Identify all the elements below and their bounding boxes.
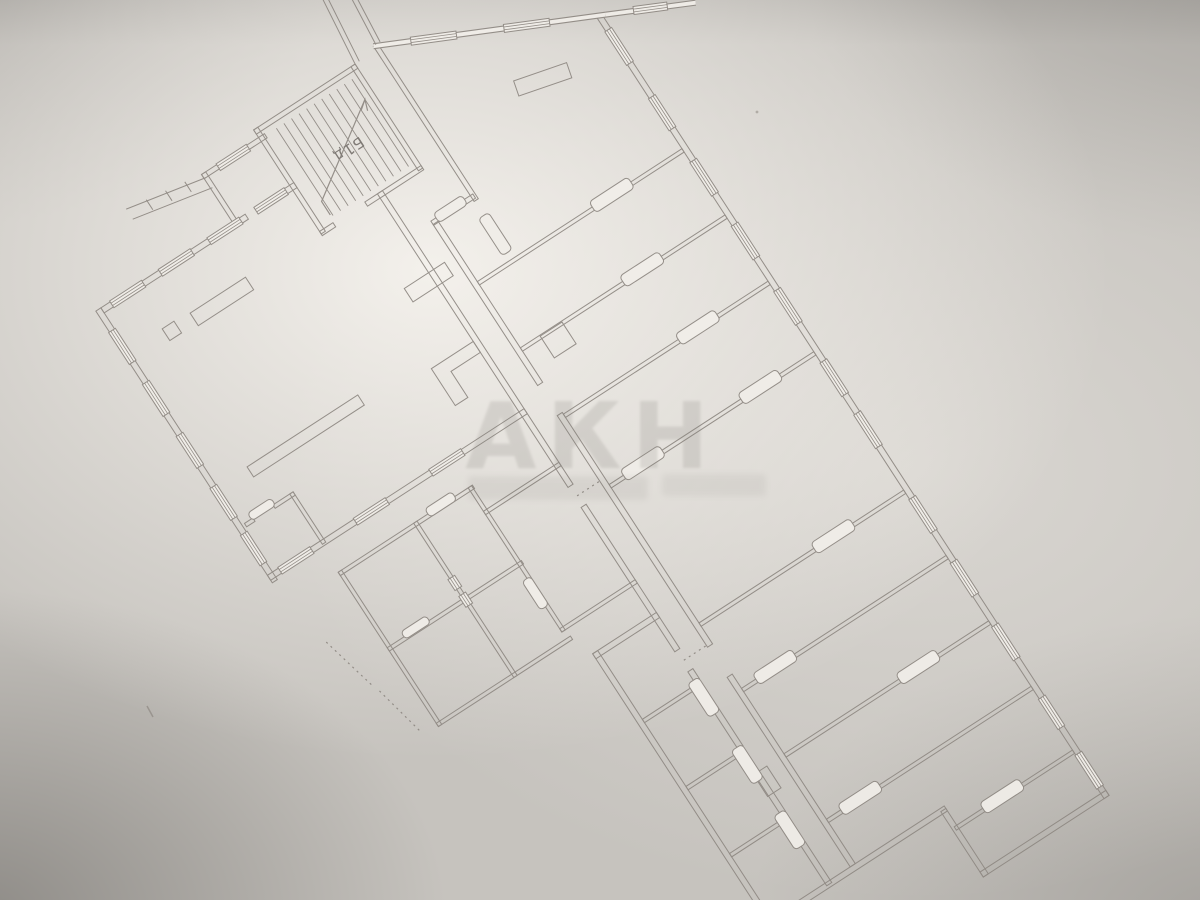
floor-plan-drawing: Б1д АКН <box>0 0 1200 900</box>
watermark: АКН <box>465 383 766 500</box>
watermark-subtext-blur-2 <box>662 474 766 496</box>
paper-speck <box>756 111 759 114</box>
watermark-subtext-blur <box>468 476 648 500</box>
stray-pen-tick <box>147 706 153 717</box>
floor-plan-photo: Б1д АКН <box>0 0 1200 900</box>
watermark-text: АКН <box>465 383 718 490</box>
